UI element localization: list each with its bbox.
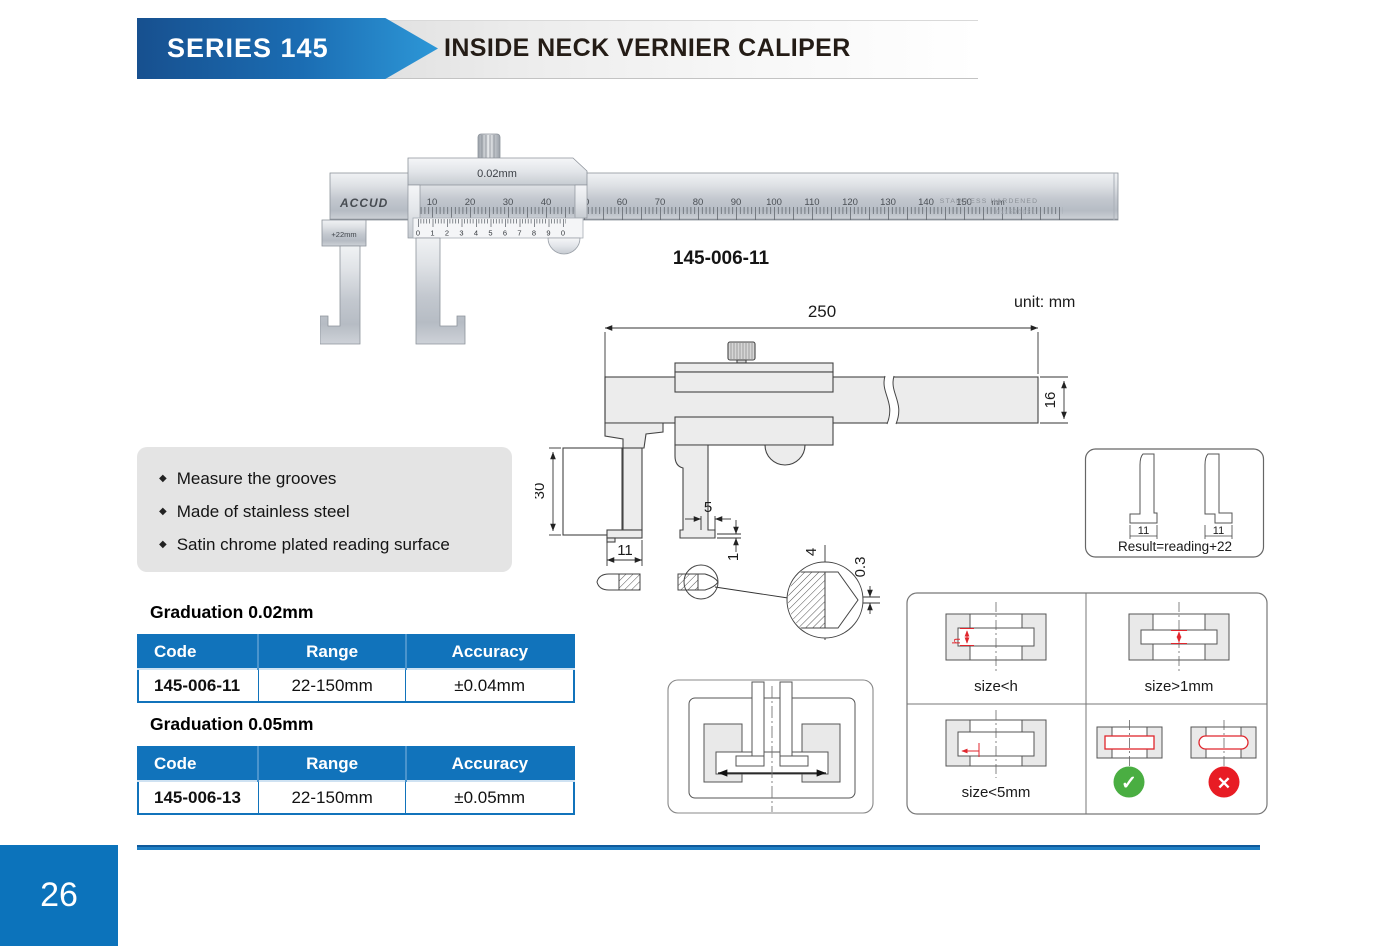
vernier-number: 6 xyxy=(503,229,507,238)
column-header-range: Range xyxy=(258,635,405,669)
series-badge: SERIES 145 xyxy=(137,18,438,79)
scale-number: 120 xyxy=(842,197,858,208)
dim-tip-edge: 0.3 xyxy=(852,557,869,578)
usage-caption: size>1mm xyxy=(1145,678,1214,695)
spec-table-1: Code Range Accuracy 145-006-11 22-150mm … xyxy=(137,634,575,703)
vernier-number: 0 xyxy=(561,229,565,238)
scale-number: 30 xyxy=(503,197,514,208)
x-glyph: ✕ xyxy=(1217,774,1231,793)
result-left-dim: 11 xyxy=(1138,525,1149,537)
scale-number: 10 xyxy=(427,197,438,208)
page-title: INSIDE NECK VERNIER CALIPER xyxy=(444,18,851,79)
dim-tip-height: 4 xyxy=(803,548,820,556)
brand-label: ACCUD xyxy=(339,196,388,210)
drawing-body xyxy=(563,342,1038,542)
result-diagram: 11 11 Result=reading+22 xyxy=(1083,445,1268,565)
scale-number: 40 xyxy=(541,197,552,208)
usage-dim-h: h xyxy=(951,638,963,644)
usage-diagrams: h size<h size>1mm size<5mm xyxy=(903,590,1271,820)
cell-code: 145-006-13 xyxy=(138,781,258,814)
diamond-bullet-icon: ◆ xyxy=(159,539,167,550)
scale-number: 140 xyxy=(918,197,934,208)
scale-number: 130 xyxy=(880,197,896,208)
table-row: 145-006-11 22-150mm ±0.04mm xyxy=(138,669,574,702)
usage-caption: size<5mm xyxy=(962,784,1031,801)
feature-text: Measure the grooves xyxy=(177,469,337,489)
feature-text: Satin chrome plated reading surface xyxy=(177,535,450,555)
feature-item: ◆ Measure the grooves xyxy=(137,462,512,495)
page-number-box: 26 xyxy=(0,845,118,946)
cell-accuracy: ±0.05mm xyxy=(406,781,574,814)
usage-caption: size<h xyxy=(974,678,1018,695)
vernier-number: 1 xyxy=(430,229,434,238)
vernier-number: 3 xyxy=(459,229,463,238)
spec-section-1: Graduation 0.02mm Code Range Accuracy 14… xyxy=(137,602,575,703)
feature-item: ◆ Satin chrome plated reading surface xyxy=(137,528,512,561)
spec-table-2: Code Range Accuracy 145-006-13 22-150mm … xyxy=(137,746,575,815)
moving-jaw xyxy=(416,238,465,344)
vernier-number: 5 xyxy=(488,229,492,238)
footer-divider xyxy=(137,845,1260,850)
stamp-serial: 011590031 xyxy=(996,209,1036,216)
column-header-range: Range xyxy=(258,747,405,781)
diamond-bullet-icon: ◆ xyxy=(159,506,167,517)
check-glyph: ✓ xyxy=(1121,773,1137,794)
scale-number: 60 xyxy=(617,197,628,208)
result-caption: Result=reading+22 xyxy=(1118,539,1232,554)
cell-accuracy: ±0.04mm xyxy=(406,669,574,702)
column-header-code: Code xyxy=(138,747,258,781)
series-label: SERIES 145 xyxy=(167,33,329,64)
dim-jaw-reach: 30 xyxy=(535,483,548,500)
stamp-line: STAINLESS HARDENED xyxy=(940,198,1039,205)
cell-range: 22-150mm xyxy=(258,781,405,814)
dim-foot-length: 11 xyxy=(617,542,633,559)
graduation-heading: Graduation 0.05mm xyxy=(150,714,575,735)
scale-number: 110 xyxy=(804,197,819,208)
result-right-dim: 11 xyxy=(1213,525,1224,537)
fixed-jaw: +22mm xyxy=(320,220,366,344)
scale-number: 100 xyxy=(766,197,782,208)
dim-total-length: 250 xyxy=(808,302,836,321)
dim-tip-width: 5 xyxy=(704,499,712,516)
vernier-number: 8 xyxy=(532,229,536,238)
features-box: ◆ Measure the grooves ◆ Made of stainles… xyxy=(137,447,512,572)
vernier-number: 0 xyxy=(416,229,420,238)
unit-label: unit: mm xyxy=(1014,294,1075,311)
feature-text: Made of stainless steel xyxy=(177,502,350,522)
scale-number: 90 xyxy=(731,197,742,208)
page-number: 26 xyxy=(40,876,78,915)
graduation-heading: Graduation 0.02mm xyxy=(150,602,575,623)
column-header-accuracy: Accuracy xyxy=(406,635,574,669)
scale-number: 70 xyxy=(655,197,666,208)
cell-range: 22-150mm xyxy=(258,669,405,702)
jaw-tip-details xyxy=(597,562,863,638)
feature-item: ◆ Made of stainless steel xyxy=(137,495,512,528)
table-row: 145-006-13 22-150mm ±0.05mm xyxy=(138,781,574,814)
scale-number: 20 xyxy=(465,197,476,208)
vernier-number: 4 xyxy=(474,229,478,238)
cross-section-diagram xyxy=(660,672,885,822)
vernier-number: 2 xyxy=(445,229,449,238)
cell-code: 145-006-11 xyxy=(138,669,258,702)
diamond-bullet-icon: ◆ xyxy=(159,473,167,484)
dim-tip-thickness: 1 xyxy=(725,553,742,561)
vernier-number: 9 xyxy=(546,229,550,238)
model-label: 145-006-11 xyxy=(621,248,821,270)
vernier-number: 7 xyxy=(517,229,521,238)
column-header-accuracy: Accuracy xyxy=(406,747,574,781)
column-header-code: Code xyxy=(138,635,258,669)
spec-section-2: Graduation 0.05mm Code Range Accuracy 14… xyxy=(137,714,575,815)
jaw-offset-label: +22mm xyxy=(331,230,356,239)
catalog-page: SERIES 145 INSIDE NECK VERNIER CALIPER xyxy=(0,0,1400,946)
dim-beam-height: 16 xyxy=(1042,392,1059,409)
technical-drawing: 250 unit: mm 16 30 11 5 1 4 0.3 xyxy=(535,290,1120,640)
scale-number: 80 xyxy=(693,197,704,208)
graduation-label: 0.02mm xyxy=(477,168,517,180)
